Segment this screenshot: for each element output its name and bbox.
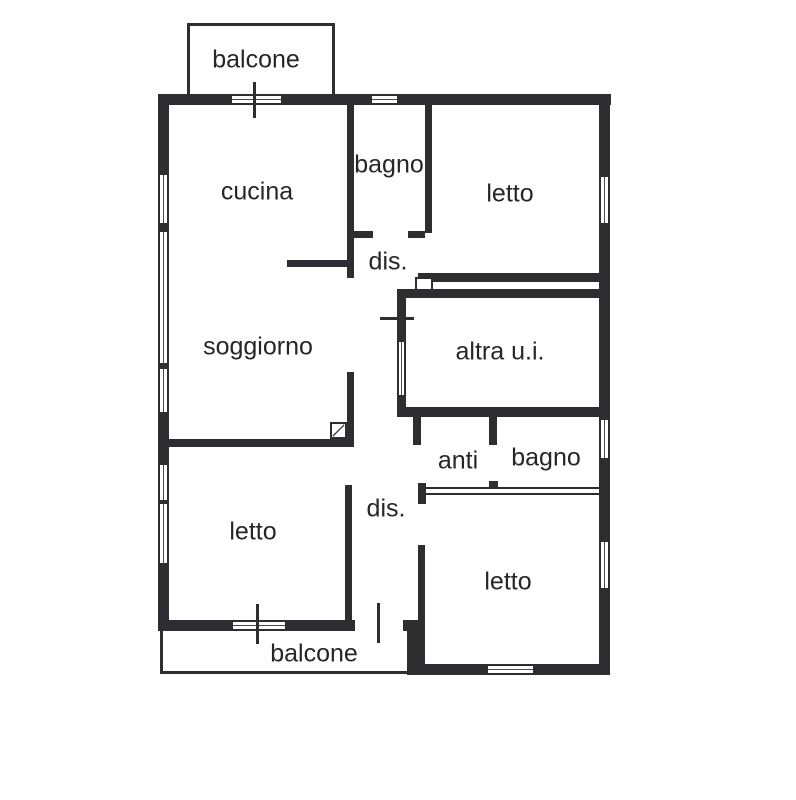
wall-segment: [418, 483, 426, 504]
room-label-letto-top-right: letto: [486, 180, 533, 209]
wall-segment: [397, 289, 599, 298]
wall-segment: [287, 260, 354, 267]
room-label-letto-bottom-right: letto: [484, 568, 531, 597]
wall-segment: [599, 458, 610, 542]
wall-segment: [489, 481, 498, 488]
wall-segment: [425, 105, 432, 233]
door-swing-mark: [380, 317, 414, 320]
room-label-anti: anti: [438, 447, 478, 476]
room-label-balcone-top: balcone: [212, 46, 300, 75]
door-swing-mark: [253, 82, 256, 118]
window-symbol: [158, 465, 169, 500]
wall-segment: [599, 588, 610, 675]
window-symbol: [599, 542, 610, 588]
wall-segment: [158, 223, 169, 232]
room-label-bagno-top: bagno: [354, 151, 424, 180]
wall-segment: [345, 485, 352, 620]
room-label-dis-top: dis.: [369, 248, 408, 277]
window-symbol: [233, 620, 285, 631]
balcony-railing: [332, 23, 335, 94]
wall-segment: [158, 94, 232, 105]
window-symbol: [599, 177, 610, 223]
door-swing-mark: [377, 603, 380, 643]
window-symbol: [372, 94, 397, 105]
window-symbol: [488, 664, 533, 675]
window-symbol: [158, 232, 169, 363]
wall-segment: [599, 94, 610, 177]
wall-segment: [169, 439, 353, 447]
window-symbol: [158, 504, 169, 563]
shaft-symbol: [330, 422, 347, 439]
floor-plan: balcone cucina bagno letto dis. soggiorn…: [0, 0, 796, 800]
wall-segment: [158, 412, 169, 465]
wall-segment: [347, 372, 354, 447]
wall-segment: [347, 105, 354, 278]
room-label-letto-bottom-left: letto: [229, 518, 276, 547]
balcony-railing: [187, 23, 335, 26]
wall-segment: [414, 664, 488, 675]
wall-segment: [408, 231, 425, 238]
wall-segment: [158, 94, 169, 175]
wall-segment: [413, 417, 421, 445]
room-label-cucina: cucina: [221, 178, 293, 207]
room-label-altra-ui: altra u.i.: [456, 338, 545, 367]
room-label-bagno-bottom: bagno: [511, 444, 581, 473]
window-symbol: [158, 369, 169, 412]
shaft-diagonal: [332, 424, 345, 437]
balcony-railing: [160, 671, 417, 674]
wall-segment: [354, 231, 373, 238]
wall-segment: [281, 94, 372, 105]
door-swing-mark: [256, 604, 259, 644]
balcony-railing: [160, 631, 163, 674]
room-label-dis-bottom: dis.: [367, 495, 406, 524]
window-symbol: [158, 175, 169, 223]
wall-segment: [285, 620, 355, 631]
wall-segment: [533, 664, 610, 675]
wall-segment: [418, 273, 599, 282]
window-symbol: [232, 94, 281, 105]
wall-segment: [397, 94, 611, 105]
window-symbol: [397, 342, 406, 395]
wall-segment: [489, 417, 497, 445]
wall-segment: [599, 223, 610, 420]
room-label-soggiorno: soggiorno: [203, 333, 313, 362]
window-symbol: [599, 420, 610, 458]
wall-segment: [418, 545, 425, 664]
wall-segment: [397, 407, 599, 417]
wall-segment: [426, 487, 599, 495]
balcony-railing: [187, 23, 190, 94]
wall-segment: [158, 620, 233, 631]
room-label-balcone-bottom: balcone: [270, 640, 358, 669]
